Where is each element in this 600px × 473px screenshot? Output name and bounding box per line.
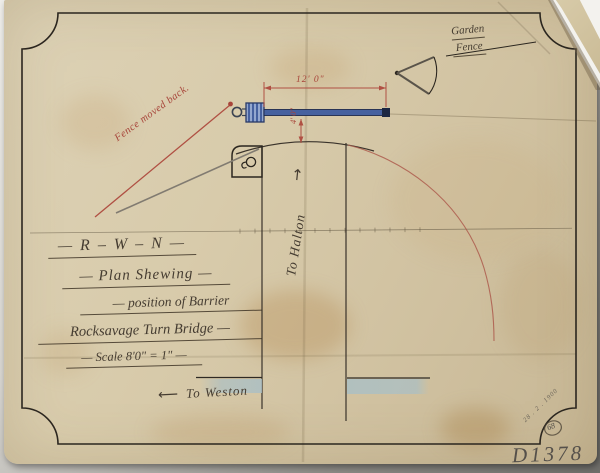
title-line-5: — Scale 8'0" = 1" — bbox=[66, 347, 202, 369]
garden-fence-line-upper bbox=[397, 57, 434, 73]
garden-fence-label-line1: Garden bbox=[451, 23, 485, 41]
capstan-handle bbox=[242, 162, 247, 168]
swing-path-arc bbox=[348, 145, 494, 341]
garden-fence-line-lower bbox=[397, 73, 429, 94]
new-fence-line bbox=[95, 105, 230, 217]
dimension-4ft-label: 4' 0" bbox=[288, 108, 298, 124]
to-halton-arrow-icon: ↑ bbox=[290, 165, 304, 184]
water-right bbox=[347, 379, 429, 394]
to-weston-label: To Weston bbox=[186, 383, 249, 402]
dimension-4ft bbox=[299, 119, 304, 143]
garden-fence-label-line2: Fence bbox=[452, 40, 486, 58]
paper-crease-right bbox=[390, 114, 596, 121]
dimension-12ft bbox=[264, 82, 386, 107]
barrier-beam bbox=[264, 110, 386, 116]
dimension-12ft-label: 12' 0" bbox=[296, 75, 325, 85]
barrier-end-block bbox=[382, 108, 390, 117]
barrier-pivot bbox=[232, 107, 241, 116]
scanned-drawing-sheet: — R – W – N — — Plan Shewing — — positio… bbox=[0, 0, 600, 473]
to-weston-arrow-icon: ⟵ bbox=[158, 386, 179, 403]
title-line-1: — R – W – N — bbox=[48, 234, 196, 259]
fence-end-dot bbox=[228, 102, 233, 107]
reference-number: D1378 bbox=[512, 441, 585, 469]
barrier-counterweight bbox=[246, 103, 264, 122]
gate-swing-arc bbox=[429, 57, 437, 94]
capstan-symbol bbox=[246, 157, 255, 166]
garden-fence-label: Garden Fence bbox=[451, 23, 487, 58]
